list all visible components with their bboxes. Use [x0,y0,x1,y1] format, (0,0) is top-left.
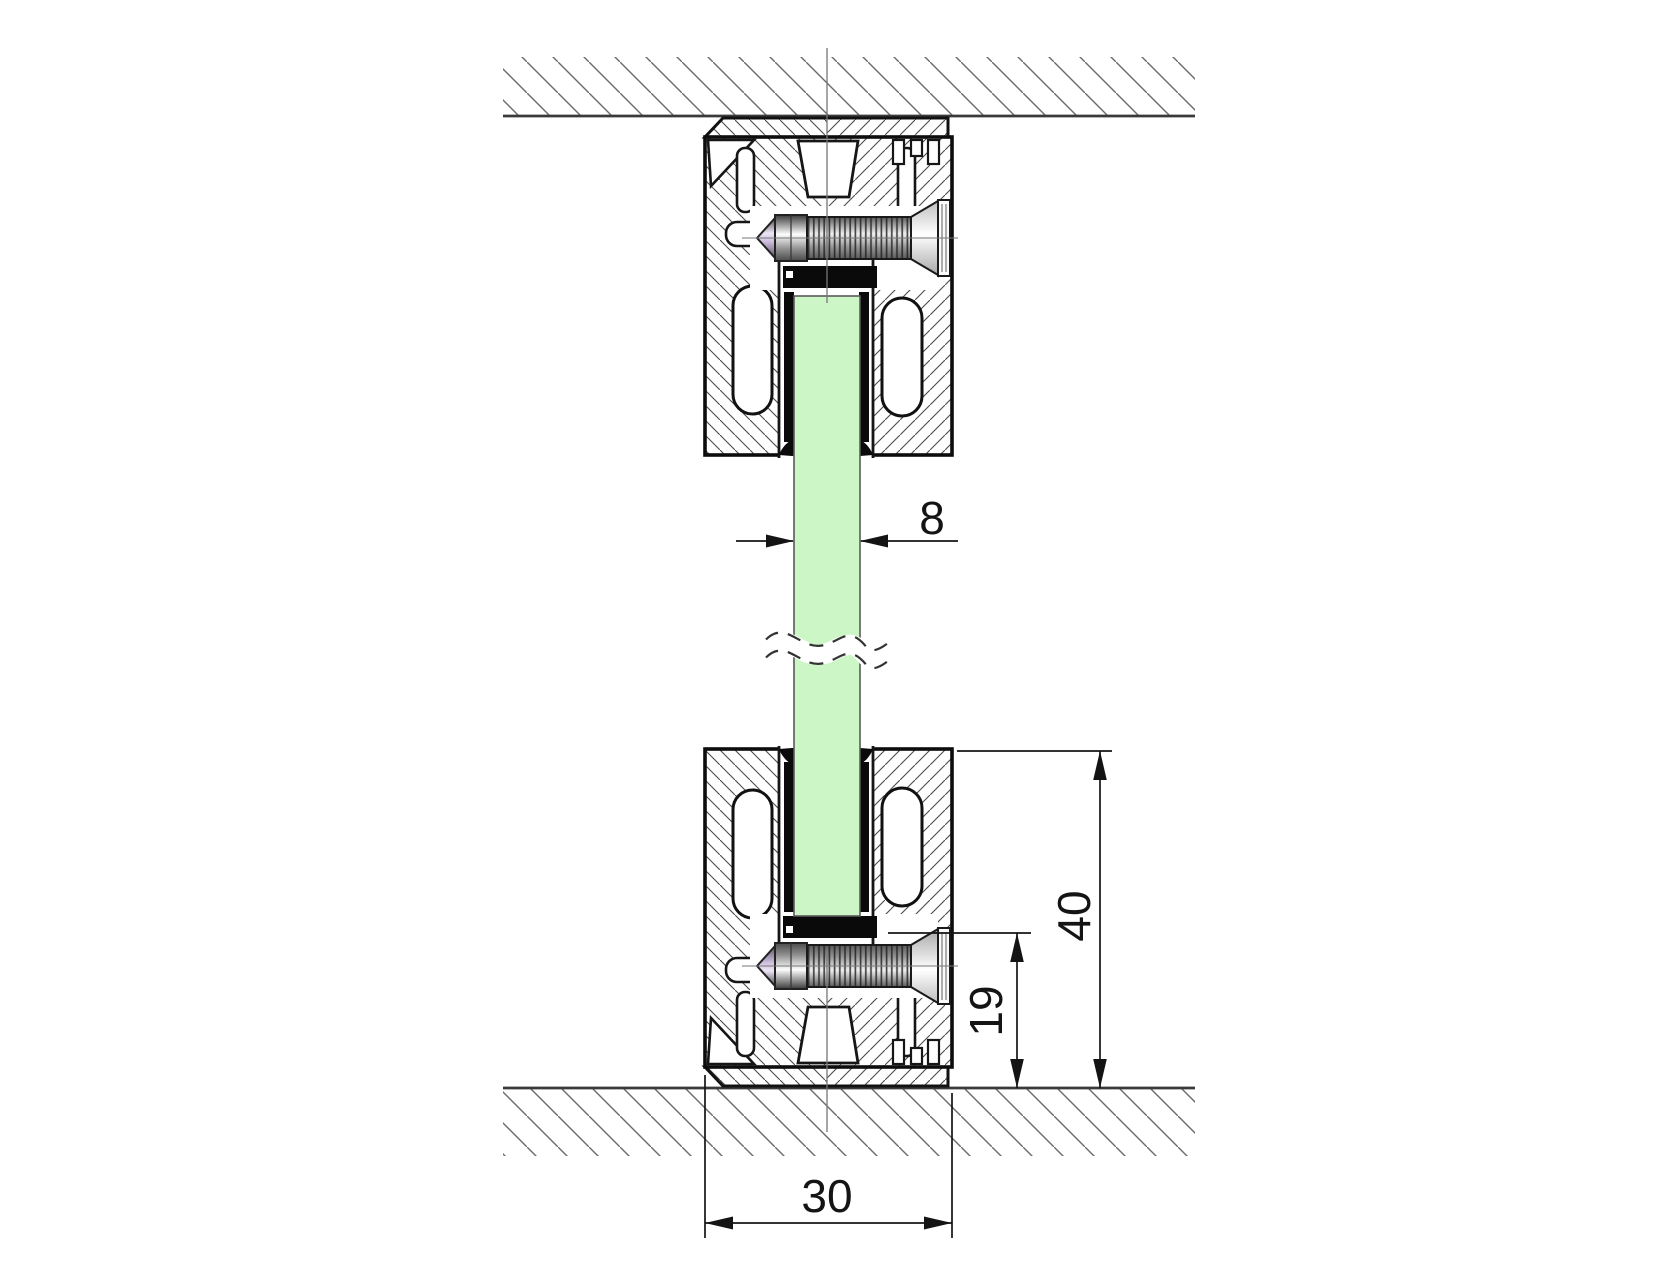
dim-label-40: 40 [1048,890,1100,941]
floor-hatch [503,1088,1195,1156]
dim-arrow [1010,1059,1024,1088]
dim-arrow [1093,751,1107,780]
break-mask [766,642,890,660]
dim-arrow [1010,933,1024,962]
glass-panel [794,296,860,916]
dim-arrow [1093,1059,1107,1088]
floor [503,1088,1195,1156]
dim-arrow [705,1217,733,1230]
ceiling [503,57,1195,116]
dim-arrow [860,535,888,548]
ceiling-hatch [503,57,1195,116]
partition-section-drawing: 8 40 19 30 [0,0,1680,1261]
dim-label-30: 30 [801,1170,852,1222]
dim-label-19: 19 [960,985,1012,1036]
dim-arrow [924,1217,952,1230]
dim-arrow [766,535,794,548]
dim-label-8: 8 [919,492,945,544]
technical-drawing-canvas: 8 40 19 30 [0,0,1680,1261]
